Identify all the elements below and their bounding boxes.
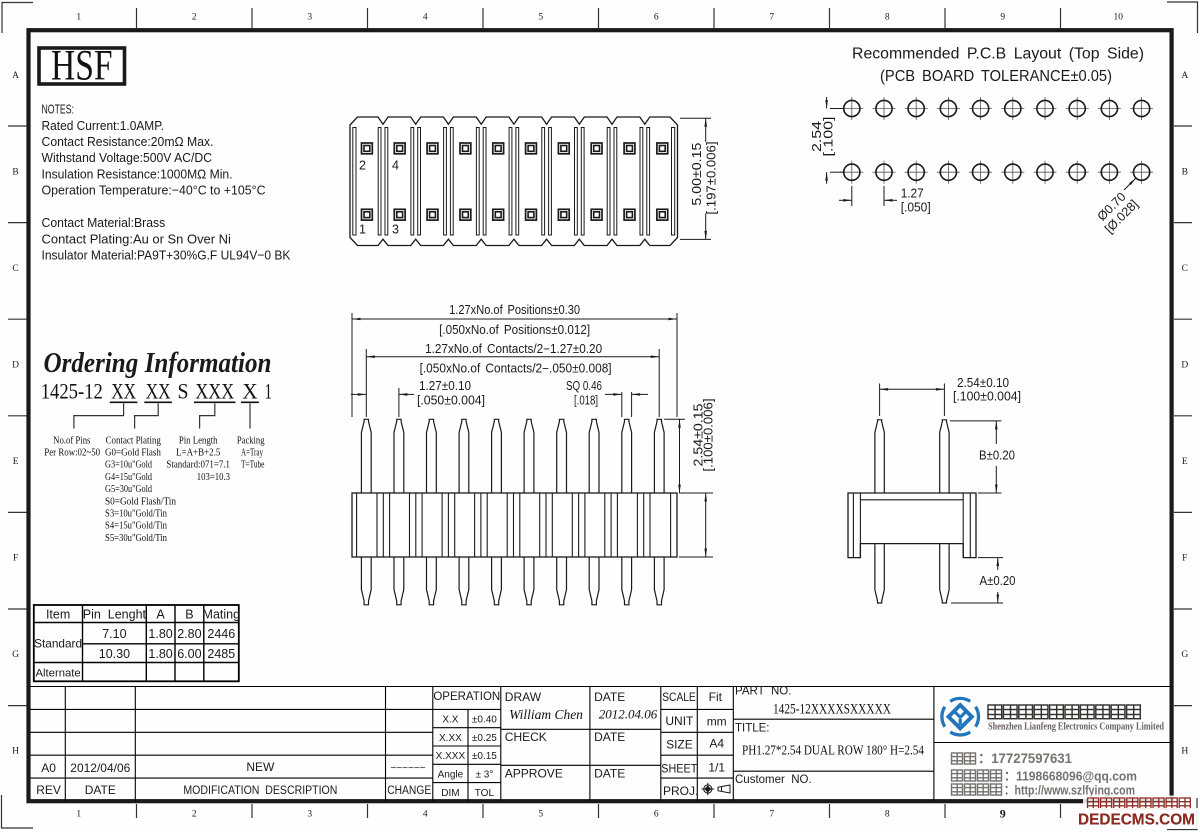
svg-text:DEDECMS.COM: DEDECMS.COM: [1078, 812, 1195, 829]
svg-text:±0.25: ±0.25: [472, 733, 497, 744]
svg-text:1.27: 1.27: [901, 187, 924, 201]
svg-text:−−−−−−: −−−−−−: [390, 763, 425, 774]
svg-text:X.X: X.X: [442, 715, 458, 726]
svg-text:Packing: Packing: [237, 434, 265, 446]
svg-text:1.27±0.10: 1.27±0.10: [419, 379, 471, 393]
svg-text:±0.15: ±0.15: [472, 751, 497, 762]
svg-text:B±0.20: B±0.20: [979, 449, 1015, 463]
svg-text:6.00: 6.00: [177, 647, 201, 661]
svg-text:3: 3: [392, 223, 399, 237]
svg-text:Shenzhen Lianfeng Electronics: Shenzhen Lianfeng Electronics Company Li…: [988, 722, 1164, 733]
svg-text:2.80: 2.80: [177, 627, 201, 641]
svg-text:1/1: 1/1: [708, 761, 725, 775]
svg-text:Withstand Voltage:500V AC/DC: Withstand Voltage:500V AC/DC: [42, 150, 213, 165]
svg-text:3: 3: [307, 810, 312, 820]
svg-text:1: 1: [359, 223, 366, 237]
svg-text:DATE: DATE: [594, 730, 625, 744]
svg-text:Recommended P.C.B Layout (Top: Recommended P.C.B Layout (Top Side): [852, 46, 1144, 63]
svg-text:2: 2: [192, 13, 197, 23]
svg-text:mm: mm: [707, 715, 727, 729]
svg-text:6: 6: [654, 13, 659, 23]
svg-text:Contact Resistance:20mΩ Max.: Contact Resistance:20mΩ Max.: [42, 134, 214, 149]
svg-text:：1198668096@qq.com: ：1198668096@qq.com: [1004, 769, 1137, 784]
svg-text:2485: 2485: [207, 647, 235, 661]
svg-text:TOL: TOL: [475, 788, 495, 799]
svg-text:7: 7: [769, 810, 774, 820]
svg-text:7.10: 7.10: [102, 627, 126, 641]
svg-text:1.80: 1.80: [148, 627, 172, 641]
svg-text:F: F: [13, 554, 18, 564]
svg-text:[.050]: [.050]: [901, 201, 931, 215]
svg-text:2012.04.06: 2012.04.06: [599, 707, 658, 722]
svg-text:1.80: 1.80: [148, 647, 172, 661]
svg-text:[.050xNo.of Contacts/2−.050±0.: [.050xNo.of Contacts/2−.050±0.008]: [420, 362, 612, 376]
svg-text:8: 8: [885, 13, 890, 23]
svg-text:A4: A4: [709, 737, 724, 751]
svg-text:2: 2: [359, 159, 366, 173]
svg-text:[.018]: [.018]: [574, 394, 598, 408]
svg-text:No.of Pins: No.of Pins: [53, 434, 90, 446]
svg-text:S0=Gold Flash/Tin: S0=Gold Flash/Tin: [105, 495, 176, 507]
svg-text:APPROVE: APPROVE: [505, 766, 563, 780]
svg-text:B: B: [12, 168, 18, 178]
svg-text:Mating: Mating: [203, 607, 241, 621]
svg-text:[.050±0.004]: [.050±0.004]: [417, 394, 485, 408]
svg-text:REV: REV: [36, 783, 61, 797]
svg-text:L=A+B+2.5: L=A+B+2.5: [176, 447, 221, 459]
svg-text:Customer NO.: Customer NO.: [735, 774, 812, 786]
svg-text:A=Tray: A=Tray: [241, 447, 263, 459]
svg-text:1: 1: [76, 810, 81, 820]
svg-text:Pin Length: Pin Length: [179, 434, 218, 446]
svg-text:7: 7: [769, 13, 774, 23]
svg-text:1: 1: [265, 379, 273, 404]
svg-text:4: 4: [423, 13, 428, 23]
svg-text:MODIFICATION DESCRIPTION: MODIFICATION DESCRIPTION: [183, 783, 337, 797]
svg-text:NOTES:: NOTES:: [42, 102, 75, 117]
svg-text:± 3°: ± 3°: [475, 770, 493, 781]
svg-text:5.00±0.15: 5.00±0.15: [690, 143, 704, 206]
svg-text:X.XX: X.XX: [439, 733, 462, 744]
svg-text:H: H: [12, 747, 19, 757]
svg-text:DATE: DATE: [85, 783, 116, 797]
svg-text:G4=15u"Gold: G4=15u"Gold: [105, 471, 152, 483]
svg-text:1: 1: [76, 13, 81, 23]
svg-text:XX: XX: [111, 379, 136, 404]
svg-text:Contact Plating: Contact Plating: [106, 434, 162, 446]
svg-text:D: D: [12, 361, 19, 371]
svg-text:H: H: [1181, 747, 1188, 757]
svg-text:5: 5: [538, 13, 543, 23]
svg-text:Insulator Material:PA9T+30%G.F: Insulator Material:PA9T+30%G.F UL94V−0 B…: [42, 248, 291, 263]
svg-text:Contact Plating:Au or Sn Over: Contact Plating:Au or Sn Over Ni: [42, 231, 232, 246]
svg-text:DATE: DATE: [594, 766, 625, 780]
svg-text:Rated Current:1.0AMP.: Rated Current:1.0AMP.: [42, 118, 165, 133]
svg-text:S5=30u"Gold/Tin: S5=30u"Gold/Tin: [105, 532, 167, 544]
svg-text:SQ 0.46: SQ 0.46: [566, 379, 602, 393]
svg-text:William Chen: William Chen: [509, 707, 583, 722]
svg-text:C: C: [1182, 264, 1188, 274]
svg-text:XX: XX: [146, 379, 171, 404]
svg-text:G: G: [1181, 650, 1188, 660]
svg-text:HSF: HSF: [51, 43, 113, 90]
svg-text:F: F: [1182, 554, 1187, 564]
svg-text:Alternate: Alternate: [35, 667, 80, 679]
svg-text:TITLE:: TITLE:: [735, 723, 770, 735]
svg-text:[.050xNo.of Positions±0.012]: [.050xNo.of Positions±0.012]: [439, 323, 590, 337]
svg-text:±0.40: ±0.40: [472, 715, 497, 726]
svg-text:A0: A0: [41, 761, 56, 775]
svg-text:UNIT: UNIT: [665, 714, 694, 728]
svg-text:9: 9: [1000, 807, 1006, 821]
svg-text:103=10.3: 103=10.3: [197, 471, 231, 483]
svg-text:Ordering Information: Ordering Information: [44, 347, 272, 379]
svg-text:4: 4: [423, 810, 428, 820]
svg-text:9: 9: [1000, 13, 1005, 23]
svg-text:Pin Lenght: Pin Lenght: [83, 607, 147, 621]
svg-text:OPERATION: OPERATION: [433, 691, 500, 703]
svg-text:[.100]: [.100]: [822, 117, 836, 157]
svg-text:2: 2: [192, 810, 197, 820]
svg-text:Per Row:02~50: Per Row:02~50: [44, 447, 100, 459]
svg-text:PH1.27*2.54 DUAL ROW 180° H=2.: PH1.27*2.54 DUAL ROW 180° H=2.54: [742, 743, 924, 758]
svg-text:A±0.20: A±0.20: [980, 574, 1016, 588]
svg-text:G3=10u"Gold: G3=10u"Gold: [105, 459, 152, 471]
svg-text:[.197±0.006]: [.197±0.006]: [705, 142, 719, 215]
svg-text:Operation Temperature:−40°C to: Operation Temperature:−40°C to +105°C: [42, 183, 266, 198]
svg-text:SIZE: SIZE: [666, 738, 693, 752]
svg-text:T=Tube: T=Tube: [241, 459, 265, 471]
svg-text:E: E: [13, 457, 19, 467]
svg-text:Fit: Fit: [709, 690, 723, 704]
svg-text:Contact Material:Brass: Contact Material:Brass: [42, 215, 166, 230]
svg-text:SHEET: SHEET: [661, 763, 697, 775]
svg-text:2446: 2446: [207, 627, 235, 641]
svg-text:G5=30u"Gold: G5=30u"Gold: [105, 483, 152, 495]
svg-text:DIM: DIM: [441, 788, 459, 799]
svg-text:PROJ.: PROJ.: [663, 784, 698, 798]
svg-text:Insulation Resistance:1000MΩ M: Insulation Resistance:1000MΩ Min.: [42, 166, 233, 181]
svg-text:1425-12XXXXSXXXXX: 1425-12XXXXSXXXXX: [773, 702, 891, 718]
svg-text:[.100±0.006]: [.100±0.006]: [702, 399, 716, 472]
svg-text:1.27xNo.of Positions±0.30: 1.27xNo.of Positions±0.30: [449, 303, 580, 317]
svg-text:Standard:071=7.1: Standard:071=7.1: [166, 459, 230, 471]
svg-text:：17727597631: ：17727597631: [978, 751, 1072, 766]
svg-text:Item: Item: [46, 607, 70, 621]
svg-text:CHECK: CHECK: [505, 730, 547, 744]
svg-text:4: 4: [392, 159, 399, 173]
svg-text:DRAW: DRAW: [505, 690, 542, 704]
svg-text:2.54±0.10: 2.54±0.10: [957, 376, 1009, 390]
svg-text:PART NO.: PART NO.: [735, 686, 791, 698]
svg-text:A: A: [156, 607, 165, 621]
svg-text:6: 6: [654, 810, 659, 820]
svg-text:1425-12: 1425-12: [41, 379, 103, 404]
svg-text:D: D: [1181, 361, 1188, 371]
svg-text:A: A: [12, 71, 19, 81]
svg-text:5: 5: [538, 810, 543, 820]
svg-text:XXX: XXX: [195, 379, 234, 404]
svg-text:B: B: [1182, 168, 1188, 178]
svg-text:B: B: [185, 607, 193, 621]
svg-text:S: S: [178, 379, 189, 404]
svg-text:2012/04/06: 2012/04/06: [70, 761, 130, 775]
svg-text:SCALE: SCALE: [662, 692, 696, 704]
svg-text:X.XXX: X.XXX: [436, 751, 466, 762]
svg-text:：http://www.szlfying.com: ：http://www.szlfying.com: [1004, 783, 1135, 798]
svg-text:Angle: Angle: [438, 770, 464, 781]
svg-text:G: G: [12, 650, 19, 660]
svg-text:Standard: Standard: [34, 636, 82, 650]
svg-text:10: 10: [1113, 13, 1123, 23]
svg-text:10.30: 10.30: [99, 647, 130, 661]
svg-text:S4=15u"Gold/Tin: S4=15u"Gold/Tin: [105, 520, 167, 532]
svg-text:CHANGE: CHANGE: [387, 785, 431, 797]
svg-text:8: 8: [885, 810, 890, 820]
svg-text:S3=10u"Gold/Tin: S3=10u"Gold/Tin: [105, 508, 167, 520]
svg-text:NEW: NEW: [246, 760, 275, 774]
svg-text:X: X: [242, 379, 257, 404]
svg-text:(PCB BOARD TOLERANCE±0.05): (PCB BOARD TOLERANCE±0.05): [880, 68, 1112, 85]
svg-text:3: 3: [307, 13, 312, 23]
svg-text:DATE: DATE: [594, 690, 625, 704]
svg-text:C: C: [12, 264, 18, 274]
svg-text:[.100±0.004]: [.100±0.004]: [953, 390, 1021, 404]
svg-text:1.27xNo.of Contacts/2−1.27±0.2: 1.27xNo.of Contacts/2−1.27±0.20: [425, 342, 602, 356]
svg-text:A: A: [1181, 71, 1188, 81]
svg-text:E: E: [1182, 457, 1188, 467]
svg-text:G0=Gold Flash: G0=Gold Flash: [105, 447, 161, 459]
